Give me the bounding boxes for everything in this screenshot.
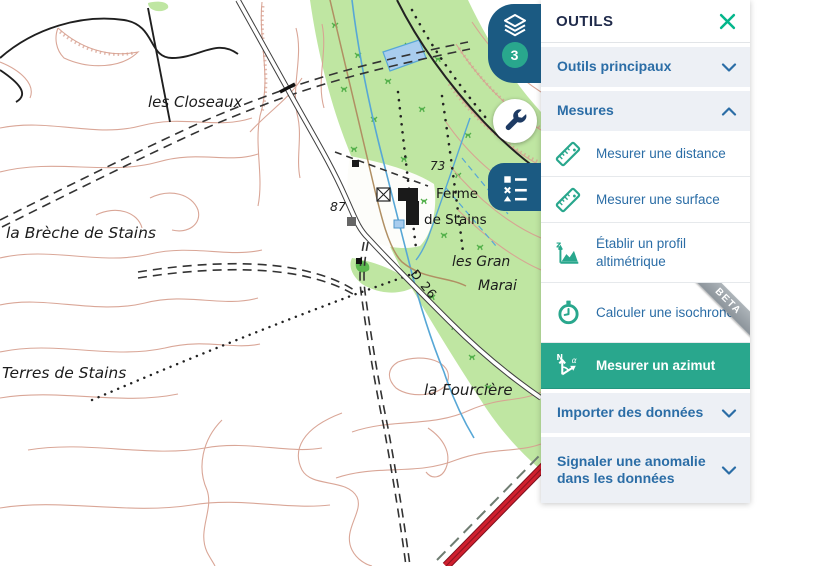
accordion-label: Outils principaux [557,58,671,76]
close-icon [719,13,736,30]
accordion-mesures[interactable]: Mesures [541,91,750,131]
stopwatch-icon [549,299,587,327]
panel-title: OUTILS [556,13,613,30]
tool-label: Établir un profil altimétrique [596,235,742,270]
wrench-icon [502,108,528,134]
legend-icon [500,172,530,202]
farm-pond [394,220,404,228]
label-ferme-2: de Stains [424,212,487,228]
layers-icon [501,12,529,38]
ruler-surface-icon [549,187,587,213]
chevron-up-icon [721,107,737,116]
chevron-down-icon [721,409,737,418]
label-breche-de-stains: la Brèche de Stains [6,224,156,242]
label-les-grands-marais-2: Marai [478,278,517,294]
tool-label: Mesurer une surface [596,191,742,209]
label-elevation-73: 73 [430,159,445,173]
chevron-down-icon [721,466,737,475]
tool-label: Mesurer un azimut [596,357,742,375]
layers-button[interactable]: 3 [488,4,541,83]
accordion-label: Mesures [557,102,614,120]
tools-wrench-button[interactable] [493,99,537,143]
legend-button[interactable] [488,163,541,211]
tool-profil-altimetrique[interactable]: z Établir un profil altimétrique [541,223,750,283]
tools-panel: OUTILS Outils principaux Mesures [541,0,750,503]
tool-mesurer-surface[interactable]: Mesurer une surface [541,177,750,223]
accordion-signaler-anomalie[interactable]: Signaler une anomalie dans les données [541,437,750,503]
close-button[interactable] [717,11,738,32]
label-ferme-1: Ferme [436,186,478,202]
label-terres-de-stains: Terres de Stains [2,364,126,382]
chevron-down-icon [721,63,737,72]
tool-label: Mesurer une distance [596,145,742,163]
panel-header: OUTILS [541,0,750,43]
accordion-importer-donnees[interactable]: Importer des données [541,393,750,433]
label-la-fourciere: la Fourcière [424,381,513,399]
tool-mesurer-distance[interactable]: Mesurer une distance [541,131,750,177]
label-elevation-87: 87 [330,199,346,214]
label-les-closeaux: les Closeaux [148,93,243,111]
label-les-grands-marais-1: les Gran [452,254,510,270]
elevation-profile-icon: z [549,240,587,266]
azimuth-icon: N α [549,352,587,379]
topo-map[interactable]: les Closeaux la Brèche de Stains Terres … [0,0,541,566]
accordion-label: Signaler une anomalie dans les données [557,453,712,488]
topo-map-canvas: les Closeaux la Brèche de Stains Terres … [0,0,541,566]
tool-calculer-isochrone[interactable]: Calculer une isochrone BETA [541,283,750,343]
tool-mesurer-azimut[interactable]: N α Mesurer un azimut [541,343,750,389]
layers-count-badge: 3 [502,42,528,68]
accordion-outils-principaux[interactable]: Outils principaux [541,47,750,87]
ruler-icon [549,141,587,167]
svg-text:α: α [571,356,577,365]
accordion-label: Importer des données [557,404,703,422]
